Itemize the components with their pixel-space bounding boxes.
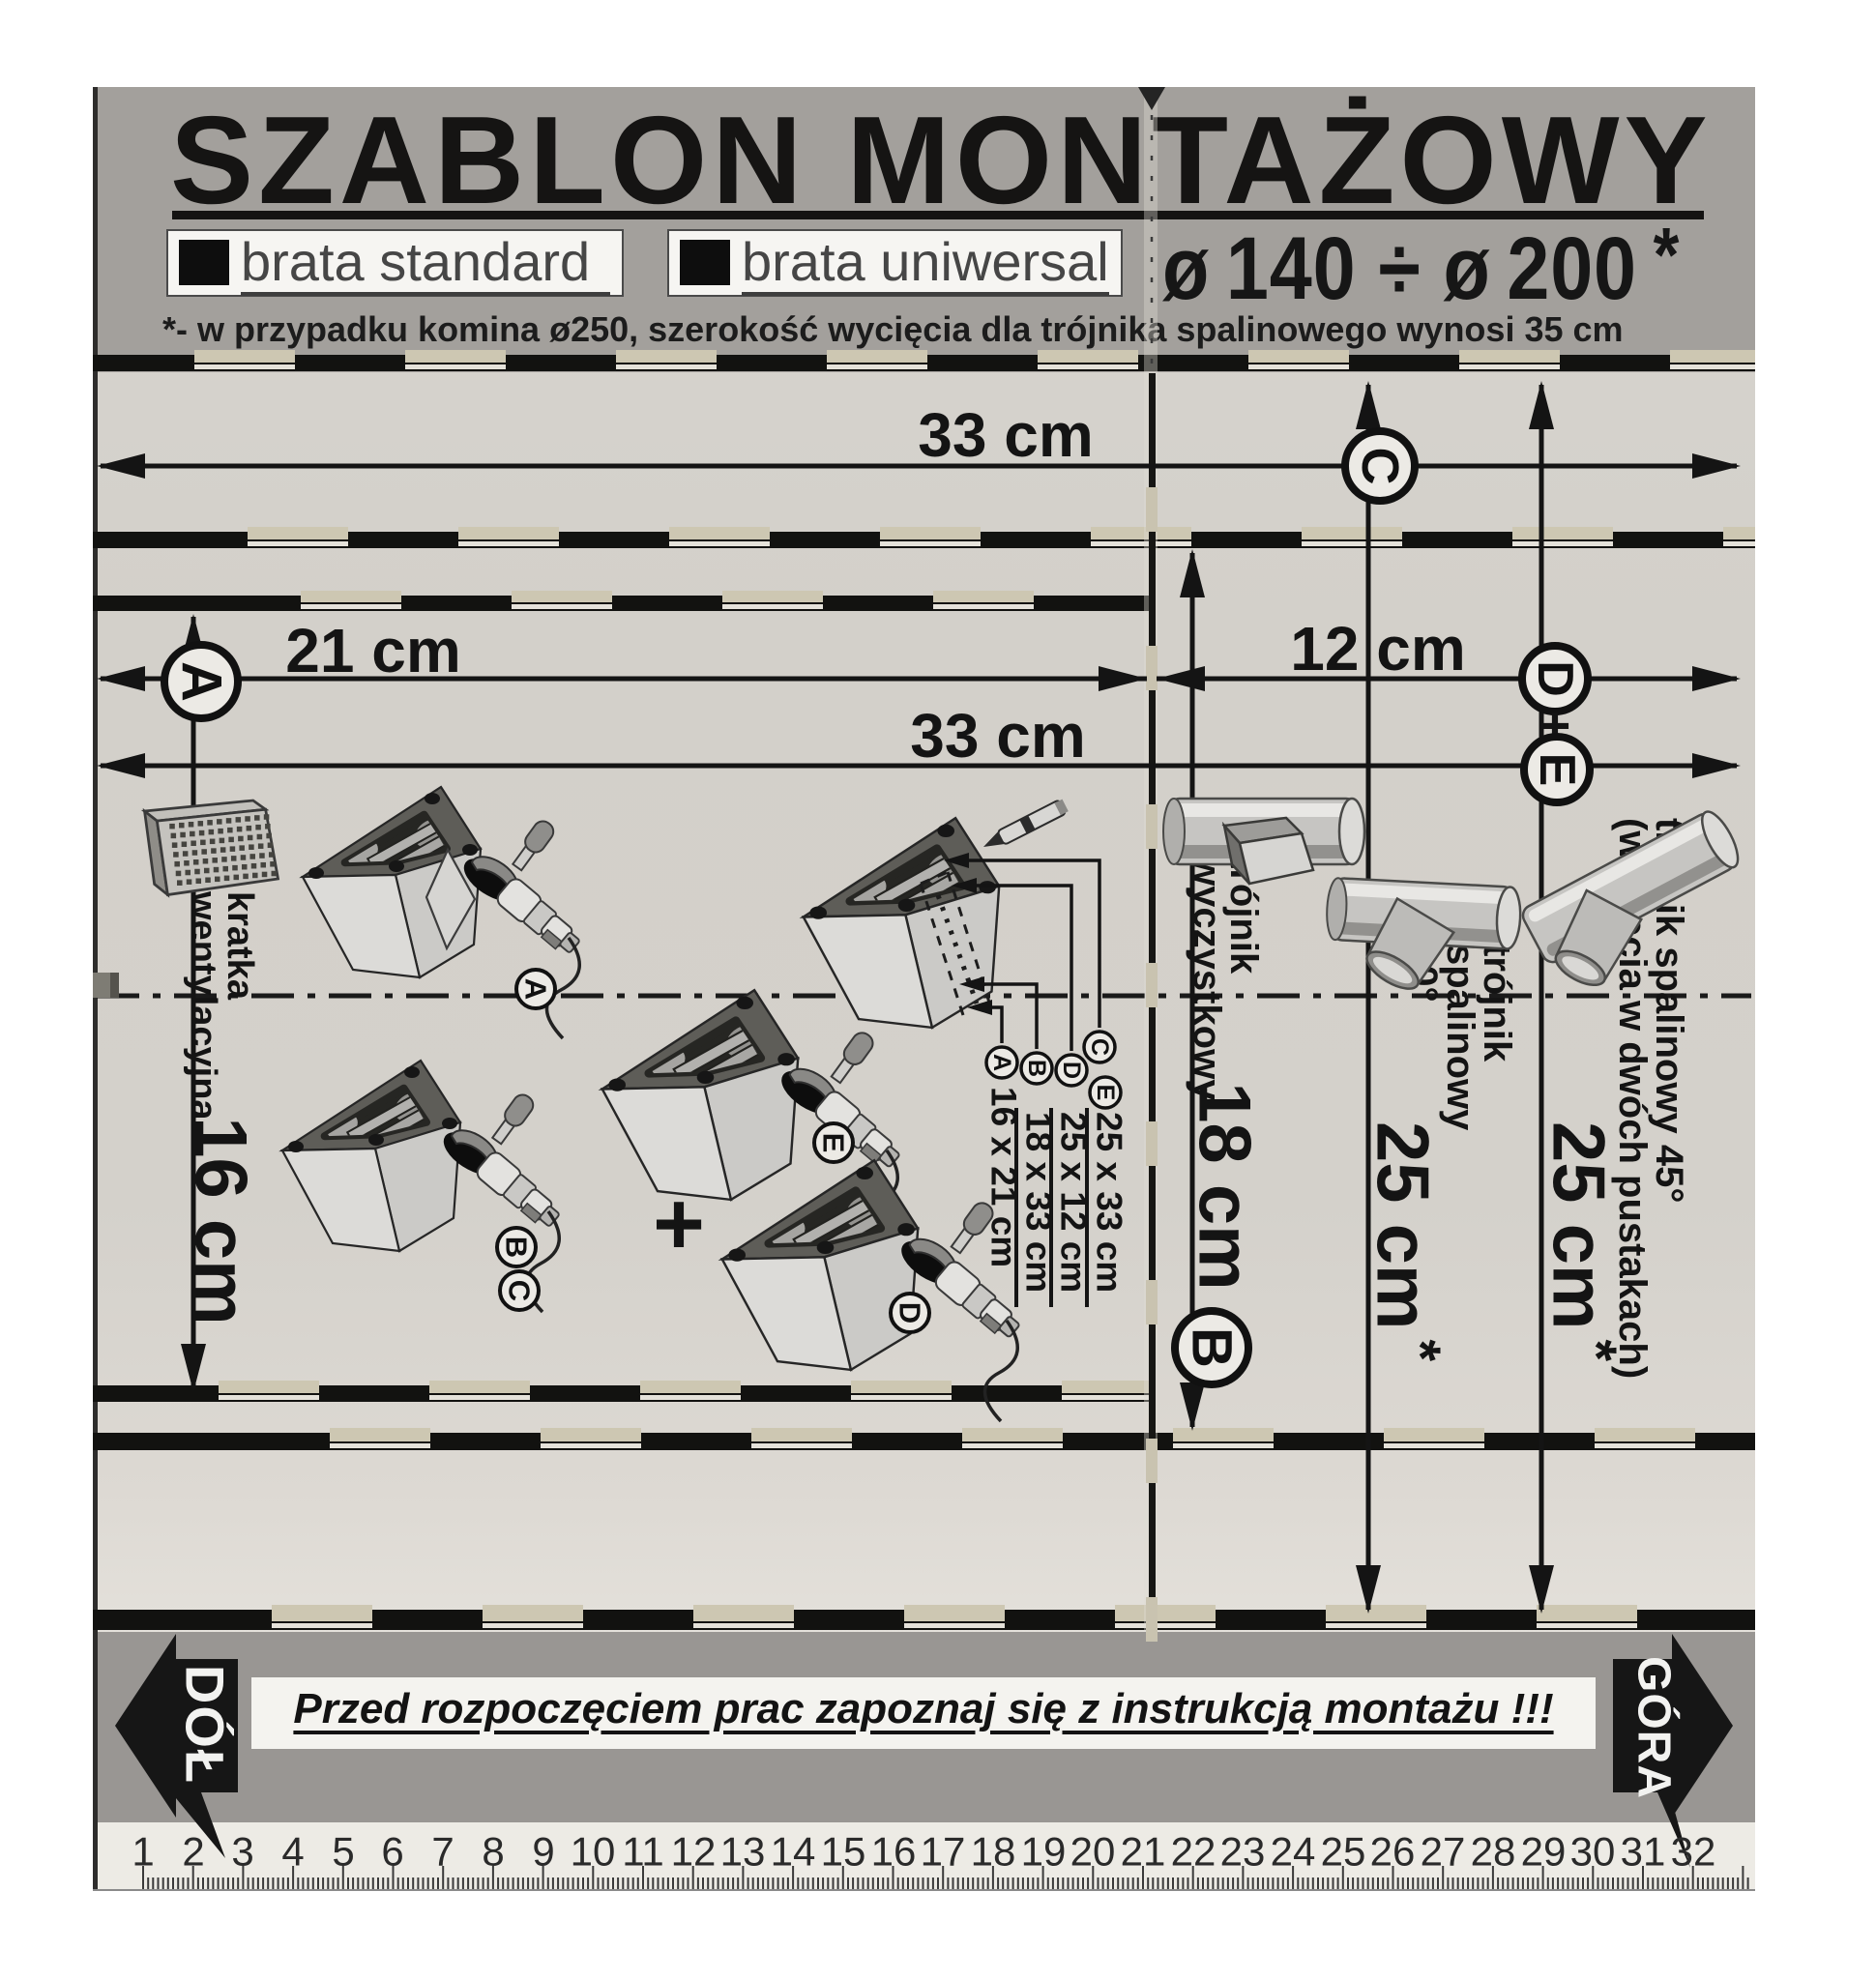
svg-text:25 x 33 cm: 25 x 33 cm [1090,1112,1129,1293]
svg-text:wyczystkowy: wyczystkowy [1186,855,1228,1101]
svg-text:A: A [170,661,233,702]
svg-text:C: C [1086,1038,1113,1056]
svg-text:A: A [519,978,553,1000]
svg-text:21 cm: 21 cm [285,616,460,685]
svg-text:33 cm: 33 cm [910,701,1085,771]
svg-text:A: A [988,1054,1015,1071]
svg-text:D: D [1527,660,1583,697]
svg-text:DÓŁ: DÓŁ [175,1665,236,1785]
svg-text:GÓRA: GÓRA [1628,1656,1682,1799]
svg-text:25 cm*: 25 cm* [1362,1121,1452,1362]
svg-text:18 cm: 18 cm [1184,1082,1266,1291]
svg-text:18 x 33 cm: 18 x 33 cm [1019,1112,1059,1293]
svg-text:16 x 21 cm: 16 x 21 cm [984,1087,1024,1267]
svg-text:+: + [653,1175,705,1273]
svg-text:kratka: kratka [220,891,260,1001]
svg-text:E: E [1092,1085,1119,1101]
svg-text:12 cm: 12 cm [1290,614,1465,684]
svg-text:D: D [894,1302,927,1324]
svg-text:16 cm: 16 cm [180,1117,262,1325]
svg-text:C: C [1351,448,1409,485]
svg-text:B: B [1023,1060,1050,1077]
svg-text:B: B [1181,1327,1244,1368]
svg-text:B: B [500,1237,534,1258]
svg-text:33 cm: 33 cm [918,400,1093,470]
svg-text:D: D [1058,1062,1085,1079]
svg-text:C: C [503,1280,537,1301]
svg-text:E: E [817,1133,851,1153]
svg-text:25 x 12 cm: 25 x 12 cm [1054,1112,1094,1293]
svg-text:E: E [1529,753,1585,787]
svg-text:wentylacyjna: wentylacyjna [183,890,223,1120]
